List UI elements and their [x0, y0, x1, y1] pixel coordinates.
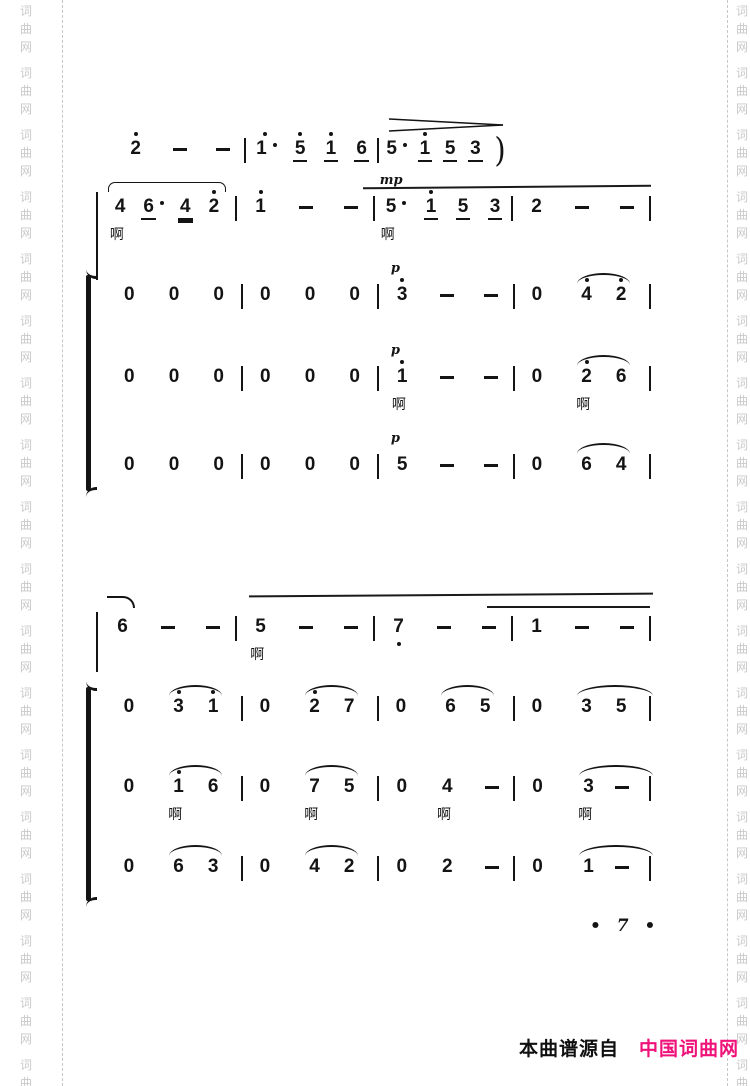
rest: 0	[302, 366, 319, 388]
measure: 01啊6	[107, 776, 241, 798]
watermark-char: 词	[17, 996, 35, 1010]
rest: 0	[529, 856, 546, 878]
watermark-char: 词	[733, 252, 750, 266]
slur: 1	[574, 856, 635, 878]
note: 2啊	[578, 366, 595, 388]
watermark-char: 网	[733, 536, 750, 550]
measure: 4啊642	[99, 196, 235, 220]
octave-dot-up	[429, 190, 433, 194]
rest: 0	[529, 366, 546, 388]
note-number: 7	[342, 696, 357, 718]
measure: 1516	[246, 138, 377, 162]
watermark-char: 曲	[733, 952, 750, 966]
watermark-text: 词曲网	[733, 4, 750, 54]
staff-melody-1: 215165153)	[113, 138, 510, 168]
note-number: 5	[614, 696, 629, 718]
watermark-text: 词曲网	[17, 252, 35, 302]
staff-choir-3: 0000005p064	[107, 454, 651, 484]
note-number: 0	[530, 696, 545, 718]
watermark-text: 词曲网	[733, 872, 750, 922]
note: 3	[170, 696, 187, 718]
note: 4	[613, 454, 630, 476]
note-number: 6	[354, 138, 369, 162]
octave-dot-up	[313, 690, 317, 694]
watermark-char: 词	[17, 252, 35, 266]
note-number: 0	[347, 284, 362, 306]
barline	[649, 366, 651, 391]
closing-paren: )	[494, 136, 505, 164]
lyric: 啊	[168, 806, 182, 822]
barline	[649, 776, 651, 801]
note-number: 0	[167, 454, 182, 476]
watermark-text: 词曲网	[17, 376, 35, 426]
rest: 0	[210, 366, 227, 388]
watermark-char: 词	[733, 996, 750, 1010]
measure: 042	[243, 856, 377, 878]
note-number: 0	[347, 366, 362, 388]
note: 3	[578, 696, 595, 718]
watermark-text: 词曲网	[733, 438, 750, 488]
note: 4	[177, 196, 194, 220]
watermark-text: 词曲网	[17, 190, 35, 240]
music-system-2: 65啊71 031027065035 01啊607啊504啊03啊 063042…	[97, 588, 653, 888]
watermark-char: 网	[17, 908, 35, 922]
watermark-char: 词	[733, 500, 750, 514]
phrase-line	[249, 593, 653, 598]
watermark-char: 词	[733, 128, 750, 142]
right-cut-line	[727, 0, 728, 1086]
note: 1	[253, 138, 278, 160]
watermark-char: 词	[733, 562, 750, 576]
octave-dot-up	[329, 132, 333, 136]
watermark-char: 网	[733, 722, 750, 736]
octave-dot-up	[177, 690, 181, 694]
watermark-char: 词	[733, 810, 750, 824]
note-number: 3	[206, 856, 221, 878]
measure: 000	[243, 366, 377, 388]
watermark-char: 网	[733, 412, 750, 426]
watermark-char: 曲	[733, 332, 750, 346]
augmentation-dot	[160, 201, 164, 205]
lyric: 啊	[576, 396, 590, 412]
note-number: 5	[342, 776, 357, 798]
watermark-char: 曲	[17, 580, 35, 594]
rest: 0	[121, 696, 138, 718]
octave-dot-up	[177, 770, 181, 774]
dash-note	[299, 206, 313, 209]
watermark-char: 词	[17, 190, 35, 204]
watermark-char: 词	[17, 810, 35, 824]
note-number: 1	[253, 196, 268, 218]
dash-note	[575, 626, 589, 629]
note-number: 1	[418, 138, 433, 162]
note-number: 2	[342, 856, 357, 878]
measure: 2	[513, 196, 649, 218]
note: 3	[205, 856, 222, 878]
watermark-char: 曲	[733, 1076, 750, 1086]
octave-dot-up	[423, 132, 427, 136]
watermark-char: 网	[733, 598, 750, 612]
rest: 0	[529, 454, 546, 476]
watermark-text: 词曲网	[733, 562, 750, 612]
watermark-char: 词	[17, 4, 35, 18]
rest: 0	[121, 776, 138, 798]
measure: 2	[113, 138, 244, 160]
note: 2	[341, 856, 358, 878]
watermark-text: 词曲网	[17, 934, 35, 984]
rest: 0	[121, 454, 138, 476]
watermark-text: 词曲网	[733, 810, 750, 860]
note-number: 3	[581, 776, 596, 798]
note: 2	[528, 196, 545, 218]
watermark-char: 词	[17, 748, 35, 762]
measure: 5mp啊153	[375, 196, 511, 220]
watermark-text: 词曲网	[17, 438, 35, 488]
measure: 7	[375, 616, 511, 638]
note-number: 5	[293, 138, 308, 162]
dash-note	[206, 626, 220, 629]
note: 5啊	[252, 616, 269, 638]
rest: 0	[529, 696, 546, 718]
note: 3p	[394, 284, 411, 306]
note-number: 2	[614, 284, 629, 306]
barline	[649, 856, 651, 881]
watermark-char: 曲	[17, 1014, 35, 1028]
watermark-char: 曲	[17, 456, 35, 470]
watermark-char: 词	[17, 438, 35, 452]
watermark-char: 曲	[733, 84, 750, 98]
watermark-text: 词曲网	[17, 624, 35, 674]
note-number: 1	[171, 776, 186, 798]
measure: 000	[107, 454, 241, 476]
note-number: 0	[530, 366, 545, 388]
note: 6	[353, 138, 370, 162]
note: 5	[292, 138, 309, 162]
measure: 1p啊	[379, 366, 513, 388]
note-number: 0	[394, 856, 409, 878]
dash-note	[484, 294, 498, 297]
slur: 64	[572, 454, 635, 476]
dash-note	[615, 866, 629, 869]
watermark-char: 网	[17, 164, 35, 178]
slur: 42	[572, 284, 635, 306]
watermark-char: 网	[733, 164, 750, 178]
watermark-text: 词曲网	[733, 66, 750, 116]
note: 1	[252, 196, 269, 218]
note-number: 3	[395, 284, 410, 306]
watermark-char: 网	[17, 288, 35, 302]
measure: 042	[515, 284, 649, 306]
score-page: 词曲网词曲网词曲网词曲网词曲网词曲网词曲网词曲网词曲网词曲网词曲网词曲网词曲网词…	[0, 0, 750, 1086]
note: 6	[114, 616, 131, 638]
watermark-text: 词曲网	[733, 190, 750, 240]
dash-note	[484, 464, 498, 467]
barline	[649, 196, 651, 221]
note-number: 0	[258, 454, 273, 476]
octave-dot-up	[259, 190, 263, 194]
note-number: 0	[530, 776, 545, 798]
dash-note	[344, 206, 358, 209]
solo-staff-barline	[96, 612, 98, 672]
note-number: 5	[384, 138, 399, 160]
slur: 7啊5	[300, 776, 363, 798]
note: 3啊	[580, 776, 597, 798]
note: 1	[417, 138, 434, 162]
dynamic-marking: p	[391, 262, 400, 275]
watermark-char: 网	[733, 908, 750, 922]
watermark-char: 网	[733, 474, 750, 488]
staff-melody-3: 65啊71	[99, 616, 651, 646]
watermark-char: 词	[733, 748, 750, 762]
note: 2	[127, 138, 144, 160]
watermark-char: 网	[733, 40, 750, 54]
watermark-text: 词曲网	[17, 872, 35, 922]
watermark-text: 词曲网	[17, 4, 35, 54]
watermark-char: 词	[17, 500, 35, 514]
watermark-char: 曲	[733, 1014, 750, 1028]
note: 1啊	[170, 776, 187, 798]
dash-note	[575, 206, 589, 209]
watermark-char: 词	[733, 66, 750, 80]
watermark-text: 词曲网	[733, 500, 750, 550]
note-number: 5	[478, 696, 493, 718]
watermark-char: 词	[17, 872, 35, 886]
note-number: 6	[115, 616, 130, 638]
note-number: 0	[258, 856, 273, 878]
watermark-char: 网	[17, 474, 35, 488]
watermark-text: 词曲网	[733, 686, 750, 736]
note: 4	[306, 856, 323, 878]
watermark-char: 曲	[17, 84, 35, 98]
note: 6	[442, 696, 459, 718]
note-number: 0	[122, 366, 137, 388]
watermark-char: 曲	[17, 208, 35, 222]
watermark-text: 词曲网	[17, 128, 35, 178]
measure: 3p	[379, 284, 513, 306]
note: 2	[206, 196, 223, 220]
measure: 027	[243, 696, 377, 718]
note: 6	[205, 776, 222, 798]
watermark-char: 曲	[17, 828, 35, 842]
note: 3	[467, 138, 484, 162]
rest: 0	[393, 856, 410, 878]
watermark-text: 词曲网	[733, 128, 750, 178]
note: 5mp啊	[383, 196, 408, 218]
dash-note	[173, 148, 187, 151]
watermark-char: 词	[733, 934, 750, 948]
watermark-char: 网	[733, 350, 750, 364]
watermark-char: 网	[733, 226, 750, 240]
watermark-char: 曲	[17, 1076, 35, 1086]
footer: 本曲谱源自 中国词曲网	[519, 1034, 739, 1061]
rest: 0	[121, 366, 138, 388]
rest: 0	[529, 776, 546, 798]
watermark-char: 网	[733, 288, 750, 302]
footer-site-name: 中国词曲网	[639, 1034, 739, 1061]
note-number: 0	[258, 776, 273, 798]
dynamic-marking: p	[391, 344, 400, 357]
note: 2	[306, 696, 323, 718]
note-number: 1	[529, 616, 544, 638]
note: 4	[578, 284, 595, 306]
note-number: 5	[443, 138, 458, 162]
watermark-char: 词	[17, 376, 35, 390]
note-number: 0	[258, 284, 273, 306]
measure: 03啊	[515, 776, 649, 798]
slur: 1啊6	[164, 776, 227, 798]
augmentation-dot	[402, 201, 406, 205]
rest: 0	[257, 776, 274, 798]
note-number: 2	[529, 196, 544, 218]
lyric: 啊	[110, 226, 124, 242]
note-number: 6	[206, 776, 221, 798]
dash-note	[482, 626, 496, 629]
measure: 1	[513, 616, 649, 638]
note-number: 3	[171, 696, 186, 718]
note-number: 1	[254, 138, 269, 160]
measure: 000	[243, 454, 377, 476]
note-number: 6	[614, 366, 629, 388]
watermark-char: 网	[17, 226, 35, 240]
note-number: 0	[347, 454, 362, 476]
watermark-char: 词	[17, 1058, 35, 1072]
note-number: 0	[530, 856, 545, 878]
note-number: 1	[395, 366, 410, 388]
watermark-char: 网	[17, 1032, 35, 1046]
note: 6	[613, 366, 630, 388]
note-number: 2	[128, 138, 143, 160]
note-number: 0	[530, 284, 545, 306]
note-number: 0	[530, 454, 545, 476]
watermark-char: 曲	[733, 642, 750, 656]
octave-dot-up	[211, 690, 215, 694]
measure: 065	[379, 696, 513, 718]
dash-note	[216, 148, 230, 151]
watermark-text: 词曲网	[17, 66, 35, 116]
lyric: 啊	[392, 396, 406, 412]
slur: 4啊642	[106, 196, 228, 220]
watermark-text: 词曲网	[17, 748, 35, 798]
rest: 0	[121, 856, 138, 878]
octave-dot-up	[585, 360, 589, 364]
note-number: 4	[178, 196, 193, 220]
note: 7	[341, 696, 358, 718]
watermark-char: 网	[733, 970, 750, 984]
watermark-char: 词	[733, 4, 750, 18]
watermark-char: 曲	[733, 270, 750, 284]
watermark-char: 词	[17, 686, 35, 700]
watermark-text: 词曲网	[17, 1058, 35, 1086]
note-number: 5	[395, 454, 410, 476]
watermark-char: 曲	[17, 270, 35, 284]
watermark-char: 曲	[733, 146, 750, 160]
staff-choir-2: 0000001p啊02啊6	[107, 366, 651, 396]
watermark-column-left: 词曲网词曲网词曲网词曲网词曲网词曲网词曲网词曲网词曲网词曲网词曲网词曲网词曲网词…	[17, 4, 35, 1086]
watermark-char: 曲	[733, 704, 750, 718]
dash-note	[344, 626, 358, 629]
octave-dot-down	[397, 642, 401, 646]
watermark-text: 词曲网	[733, 934, 750, 984]
note: 4啊	[112, 196, 129, 220]
lyric: 啊	[437, 806, 451, 822]
watermark-char: 词	[733, 686, 750, 700]
note: 2	[439, 856, 456, 878]
rest: 0	[346, 366, 363, 388]
dash-note	[484, 376, 498, 379]
note-number: 0	[258, 366, 273, 388]
note-number: 0	[122, 776, 137, 798]
measure: 04啊	[379, 776, 513, 798]
measure: 07啊5	[243, 776, 377, 798]
note: 2	[613, 284, 630, 306]
dash-note	[620, 206, 634, 209]
note: 5	[613, 696, 630, 718]
watermark-char: 曲	[17, 642, 35, 656]
note-number: 0	[258, 696, 273, 718]
lyric: 啊	[304, 806, 318, 822]
watermark-text: 词曲网	[17, 314, 35, 364]
watermark-char: 词	[17, 128, 35, 142]
measure: 035	[515, 696, 649, 718]
note-number: 5	[384, 196, 399, 218]
octave-dot-up	[298, 132, 302, 136]
note: 1	[528, 616, 545, 638]
measure: 000	[243, 284, 377, 306]
note-number: 3	[579, 696, 594, 718]
lyric: 啊	[381, 226, 395, 242]
note: 1	[580, 856, 597, 878]
watermark-char: 网	[17, 660, 35, 674]
dash-note	[437, 626, 451, 629]
decrescendo-hairpin	[387, 116, 507, 133]
slur: 65	[436, 696, 499, 718]
note-number: 4	[113, 196, 128, 218]
dash-note	[299, 626, 313, 629]
watermark-char: 网	[17, 40, 35, 54]
watermark-char: 网	[17, 536, 35, 550]
octave-dot-up	[400, 278, 404, 282]
rest: 0	[346, 454, 363, 476]
watermark-char: 词	[17, 562, 35, 576]
watermark-char: 词	[733, 624, 750, 638]
rest: 0	[166, 366, 183, 388]
note-number: 6	[171, 856, 186, 878]
dash-note	[620, 626, 634, 629]
watermark-char: 网	[17, 350, 35, 364]
note: 5	[383, 138, 408, 160]
rest: 0	[257, 696, 274, 718]
note: 1	[205, 696, 222, 718]
dynamic-marking: p	[391, 432, 400, 445]
note-number: 0	[122, 284, 137, 306]
rest: 0	[121, 284, 138, 306]
staff-choir-1: 031027065035	[107, 696, 651, 726]
watermark-char: 曲	[17, 146, 35, 160]
note: 1	[323, 138, 340, 162]
rest: 0	[346, 284, 363, 306]
watermark-text: 词曲网	[733, 314, 750, 364]
slur: 42	[300, 856, 363, 878]
note-number: 2	[440, 856, 455, 878]
lyric: 啊	[250, 646, 264, 662]
left-cut-line	[62, 0, 63, 1086]
rest: 0	[166, 284, 183, 306]
watermark-char: 曲	[733, 580, 750, 594]
measure: 02啊6	[515, 366, 649, 388]
octave-dot-up	[585, 278, 589, 282]
note-number: 5	[253, 616, 268, 638]
note-number: 7	[391, 616, 406, 638]
